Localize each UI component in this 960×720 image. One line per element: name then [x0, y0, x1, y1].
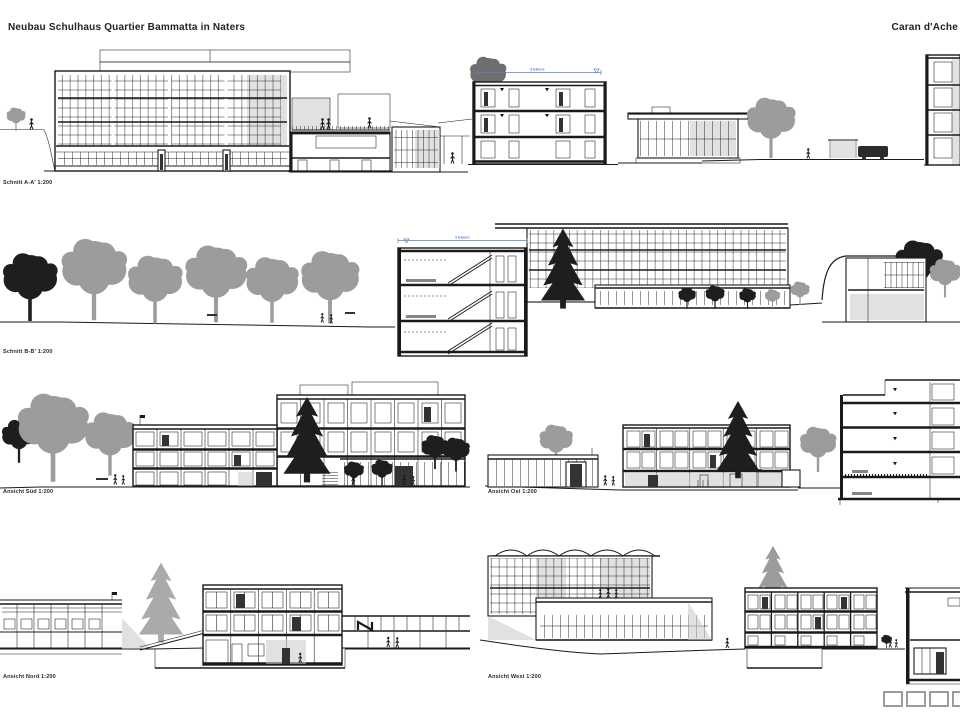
building-ost-main: [623, 425, 790, 487]
vehicle-icon: [858, 146, 888, 157]
building-west-main: [488, 550, 712, 640]
title-block-box: [883, 691, 903, 707]
label-schnitt-aa: Schnitt A-A' 1:200: [3, 180, 52, 186]
drawing-schnitt-aa: 3 Ebene: [0, 50, 960, 172]
drawing-schnitt-bb: 3 Ebene: [0, 224, 960, 356]
building-sued-front: [133, 415, 277, 486]
title-block-box: [906, 691, 926, 707]
building-west-classrooms: [745, 588, 877, 668]
building-west-section: [905, 588, 960, 684]
label-ansicht-nord: Ansicht Nord 1:200: [3, 674, 56, 680]
sheet-author: Caran d'Ache: [892, 22, 958, 33]
building-curved-roof: [822, 240, 960, 322]
drawing-sheet: 3 Ebene: [0, 0, 960, 720]
drawing-ansicht-sued: [0, 382, 470, 488]
building-section-middle: [288, 94, 472, 172]
dimension-note-bb: 3 Ebene: [455, 236, 470, 240]
building-nord-annex: [342, 616, 470, 648]
building-rear-elevation: [495, 224, 810, 309]
label-ansicht-west: Ansicht West 1:200: [488, 674, 541, 680]
label-ansicht-ost: Ansicht Ost 1:200: [488, 489, 537, 495]
person-icon: [30, 118, 34, 129]
building-section-cut: 3 Ebene: [470, 57, 606, 164]
drawing-ansicht-nord: [0, 563, 470, 668]
tree-icon: [747, 98, 796, 158]
title-block-box: [929, 691, 949, 707]
building-nord-hall: [0, 592, 150, 648]
building-ost-section: [838, 380, 960, 505]
plan-canvas: 3 Ebene: [0, 0, 960, 720]
sheet-title: Neubau Schulhaus Quartier Bammatta in Na…: [8, 22, 245, 33]
tree-icon: [7, 107, 26, 131]
label-schnitt-bb: Schnitt B-B' 1:200: [3, 349, 53, 355]
drawing-ansicht-ost: [485, 380, 960, 505]
building-pavilion: [628, 107, 748, 163]
title-block-boxes: [883, 691, 960, 707]
title-block-box: [952, 691, 960, 707]
conifer-icon: [139, 563, 183, 643]
building-stair-section: 3 Ebene: [398, 236, 527, 357]
dimension-note-aa: 3 Ebene: [530, 68, 545, 72]
building-nord-main: [155, 585, 345, 668]
drawing-ansicht-west: [480, 546, 960, 684]
person-icon: [807, 148, 810, 158]
label-ansicht-sued: Ansicht Süd 1:200: [3, 489, 53, 495]
landscape-right: [747, 55, 960, 165]
tree-icon: [3, 253, 58, 321]
building-colonnade: [488, 448, 598, 487]
